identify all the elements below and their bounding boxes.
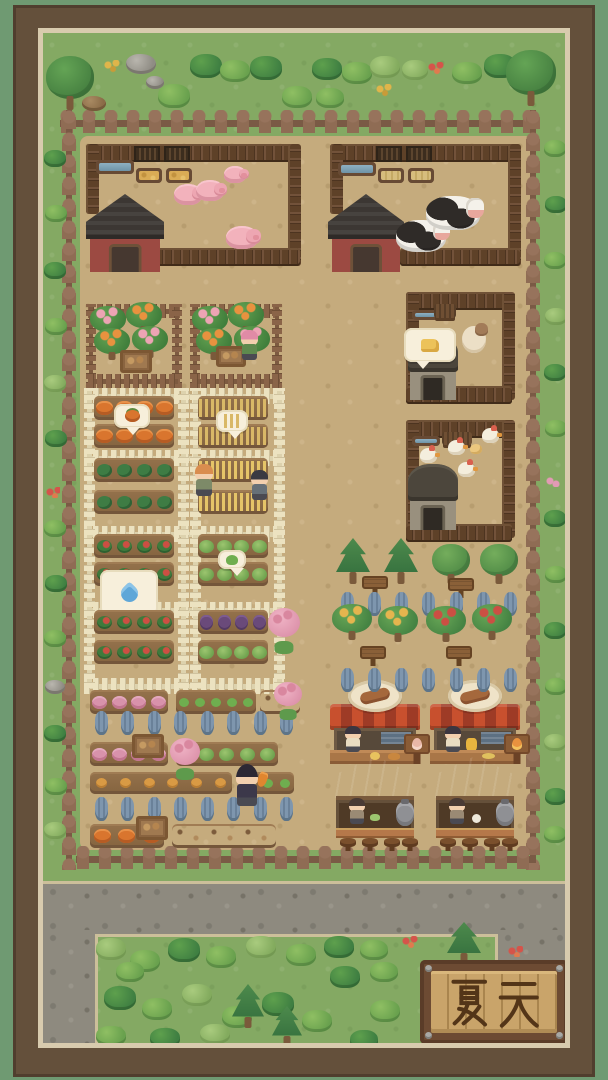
tree-conifer	[384, 538, 418, 584]
sprite-layer	[0, 0, 608, 1080]
tree-blossom	[170, 738, 200, 780]
flower-red	[508, 946, 523, 957]
sign-stud	[425, 1032, 432, 1039]
bush	[44, 630, 66, 647]
bush	[150, 1028, 180, 1048]
bush	[545, 420, 567, 437]
bush	[286, 944, 316, 966]
bubble-cheese[interactable]	[404, 328, 456, 362]
bush	[44, 520, 66, 537]
bush	[44, 725, 66, 742]
farm-map: 夏天	[0, 0, 608, 1080]
crop-row-tomato	[94, 640, 174, 664]
bush	[370, 1000, 400, 1022]
chicken[interactable]	[420, 448, 437, 463]
tree-conifer	[232, 984, 264, 1028]
rock	[45, 680, 65, 694]
crate	[120, 350, 152, 373]
sign-stud	[556, 1032, 563, 1039]
bush	[45, 575, 67, 592]
bush	[302, 1010, 332, 1032]
crate	[136, 816, 168, 840]
bush	[544, 510, 566, 527]
sign-planks: 夏天	[431, 971, 557, 1033]
tree-conifer	[272, 1006, 302, 1046]
bush	[330, 966, 360, 988]
flower-pink	[546, 476, 560, 487]
bush	[206, 946, 236, 968]
npc-orange[interactable]	[194, 464, 214, 496]
crop-row-lavender	[88, 794, 300, 824]
sign-glyphs-summer	[435, 975, 553, 1029]
bush	[116, 962, 144, 982]
bush	[544, 826, 566, 843]
crop-row-lavender	[334, 666, 524, 694]
pig[interactable]	[226, 226, 258, 249]
bush	[104, 986, 136, 1010]
bush	[158, 84, 190, 108]
crop-row-melon	[94, 490, 174, 514]
bush	[342, 62, 372, 84]
bush	[45, 430, 67, 447]
bubble-wheatB[interactable]	[216, 410, 248, 432]
crop-row-sproutO	[90, 772, 232, 794]
bush	[324, 936, 354, 958]
bush	[544, 364, 566, 381]
crate	[132, 734, 164, 758]
bush	[370, 962, 398, 982]
tree-fgold	[378, 606, 418, 642]
tree-conifer	[447, 922, 481, 964]
bush	[168, 938, 200, 962]
tree-fgold	[332, 604, 372, 640]
bubble-pumpkinB[interactable]	[114, 404, 150, 428]
flower-yellow	[104, 60, 124, 74]
pig[interactable]	[224, 166, 246, 183]
bush	[45, 205, 67, 222]
crop-row-tomato	[94, 610, 174, 634]
pig[interactable]	[196, 180, 224, 201]
bush	[45, 778, 67, 795]
crop-row-soil	[172, 824, 276, 848]
bush	[545, 566, 567, 583]
small-sign	[446, 646, 472, 666]
bush	[544, 140, 566, 157]
bush	[96, 938, 126, 960]
crop-row-eggplant	[198, 610, 268, 634]
crop-row-cabbage	[198, 640, 268, 664]
bush	[250, 56, 282, 80]
flower-red	[402, 936, 418, 948]
bush	[44, 375, 66, 392]
cow[interactable]	[426, 196, 480, 230]
npc-pink[interactable]	[240, 330, 259, 360]
bush	[360, 940, 388, 960]
bush	[282, 86, 312, 108]
crop-row-tomato	[94, 534, 174, 558]
bubble-sproutB[interactable]	[218, 550, 246, 569]
tree-blossom	[274, 682, 302, 720]
crop-row-lavender	[88, 708, 300, 738]
goat[interactable]	[462, 326, 486, 353]
flower-red	[428, 62, 446, 75]
bush	[370, 56, 400, 78]
bush	[545, 678, 567, 695]
bush	[544, 734, 566, 751]
bush	[545, 196, 567, 213]
bush	[182, 984, 212, 1006]
npc-black[interactable]	[250, 470, 269, 500]
flower-yellow	[376, 84, 396, 98]
bush	[220, 60, 250, 82]
chick[interactable]	[470, 444, 482, 454]
bush	[545, 788, 567, 805]
bush	[544, 252, 566, 269]
crop-row-melon	[94, 458, 174, 482]
tree-blossom	[268, 608, 300, 654]
bush	[200, 1024, 230, 1044]
chicken[interactable]	[448, 440, 465, 455]
bush	[316, 88, 344, 108]
rock	[126, 54, 156, 74]
bush	[312, 58, 342, 80]
bush	[44, 150, 66, 167]
flower-red	[46, 487, 60, 498]
bush	[545, 308, 567, 325]
chicken[interactable]	[482, 428, 499, 443]
season-sign[interactable]: 夏天	[420, 960, 568, 1044]
chicken[interactable]	[458, 462, 475, 477]
bush	[452, 62, 482, 84]
bush	[190, 54, 222, 78]
bush	[142, 998, 172, 1020]
rock	[82, 96, 106, 111]
tree-fred	[472, 604, 512, 640]
bush	[44, 822, 66, 839]
tree-oak	[480, 544, 518, 584]
bush	[45, 318, 67, 335]
bush	[44, 262, 66, 279]
bush	[350, 1030, 378, 1050]
bush	[544, 622, 566, 639]
small-sign	[360, 646, 386, 666]
tree-fred	[426, 606, 466, 642]
sign-stud	[556, 965, 563, 972]
tree-big	[506, 50, 556, 106]
bush	[96, 1026, 126, 1046]
npc-witch[interactable]	[234, 764, 260, 806]
bush	[246, 936, 276, 958]
bush	[402, 60, 428, 80]
